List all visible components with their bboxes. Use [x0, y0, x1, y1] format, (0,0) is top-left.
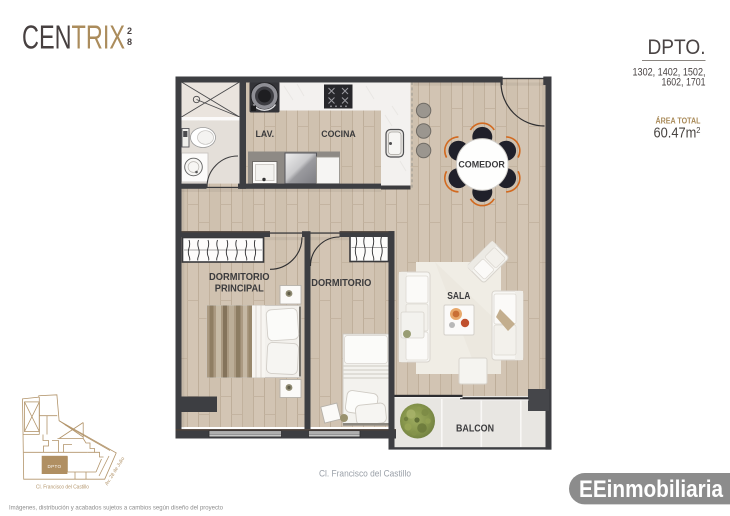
svg-text:DORMITORIO: DORMITORIO: [209, 272, 270, 283]
svg-text:2: 2: [127, 26, 132, 36]
svg-text:Imágenes, distribución y acaba: Imágenes, distribución y acabados sujeto…: [9, 505, 223, 512]
svg-text:BALCON: BALCON: [456, 424, 494, 435]
svg-text:LAV.: LAV.: [256, 129, 275, 140]
svg-text:1602, 1701: 1602, 1701: [662, 77, 706, 89]
svg-text:DORMITORIO: DORMITORIO: [311, 278, 371, 289]
svg-text:COCINA: COCINA: [321, 129, 356, 140]
svg-text:EEinmobiliaria: EEinmobiliaria: [579, 476, 724, 503]
svg-text:60.47m2: 60.47m2: [654, 125, 701, 142]
svg-text:DPTO.: DPTO.: [648, 35, 706, 59]
svg-text:Av. 28 de Julio: Av. 28 de Julio: [104, 456, 126, 487]
svg-text:DPTO: DPTO: [48, 464, 62, 469]
svg-text:8: 8: [127, 37, 132, 47]
svg-text:Cl. Francisco del Castillo: Cl. Francisco del Castillo: [36, 485, 89, 491]
svg-text:ÁREA TOTAL: ÁREA TOTAL: [656, 116, 701, 126]
svg-text:SALA: SALA: [447, 291, 471, 302]
svg-text:Cl. Francisco del Castillo: Cl. Francisco del Castillo: [319, 469, 411, 479]
svg-text:CENTRIX: CENTRIX: [22, 19, 125, 56]
svg-text:PRINCIPAL: PRINCIPAL: [215, 284, 264, 295]
svg-text:COMEDOR: COMEDOR: [458, 160, 505, 171]
